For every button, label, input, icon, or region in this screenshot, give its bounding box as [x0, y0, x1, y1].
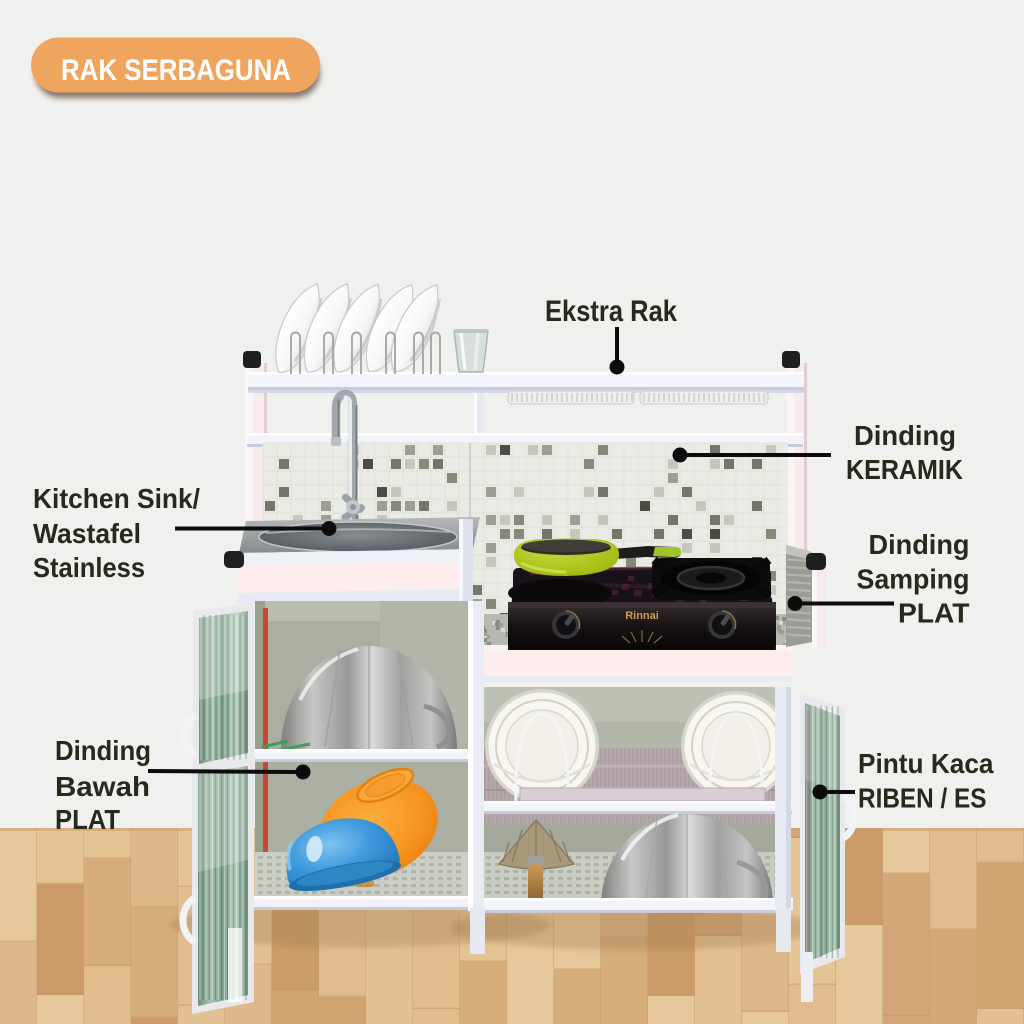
svg-text:Rinnai: Rinnai: [625, 610, 659, 622]
svg-text:Bawah: Bawah: [55, 771, 150, 802]
svg-text:Stainless: Stainless: [33, 552, 145, 583]
svg-text:KERAMIK: KERAMIK: [846, 454, 963, 485]
svg-text:PLAT: PLAT: [898, 598, 970, 629]
svg-text:Kitchen Sink/: Kitchen Sink/: [33, 483, 200, 514]
svg-text:Wastafel: Wastafel: [33, 518, 141, 549]
svg-text:Samping: Samping: [857, 564, 970, 595]
svg-text:PLAT: PLAT: [55, 804, 120, 835]
svg-text:Dinding: Dinding: [869, 529, 970, 560]
svg-text:Pintu Kaca: Pintu Kaca: [858, 748, 994, 779]
svg-text:Dinding: Dinding: [55, 735, 151, 766]
svg-text:RIBEN / ES: RIBEN / ES: [858, 783, 987, 814]
svg-text:RAK SERBAGUNA: RAK SERBAGUNA: [61, 54, 291, 87]
svg-text:Dinding: Dinding: [854, 420, 956, 451]
svg-text:Ekstra Rak: Ekstra Rak: [545, 295, 677, 328]
